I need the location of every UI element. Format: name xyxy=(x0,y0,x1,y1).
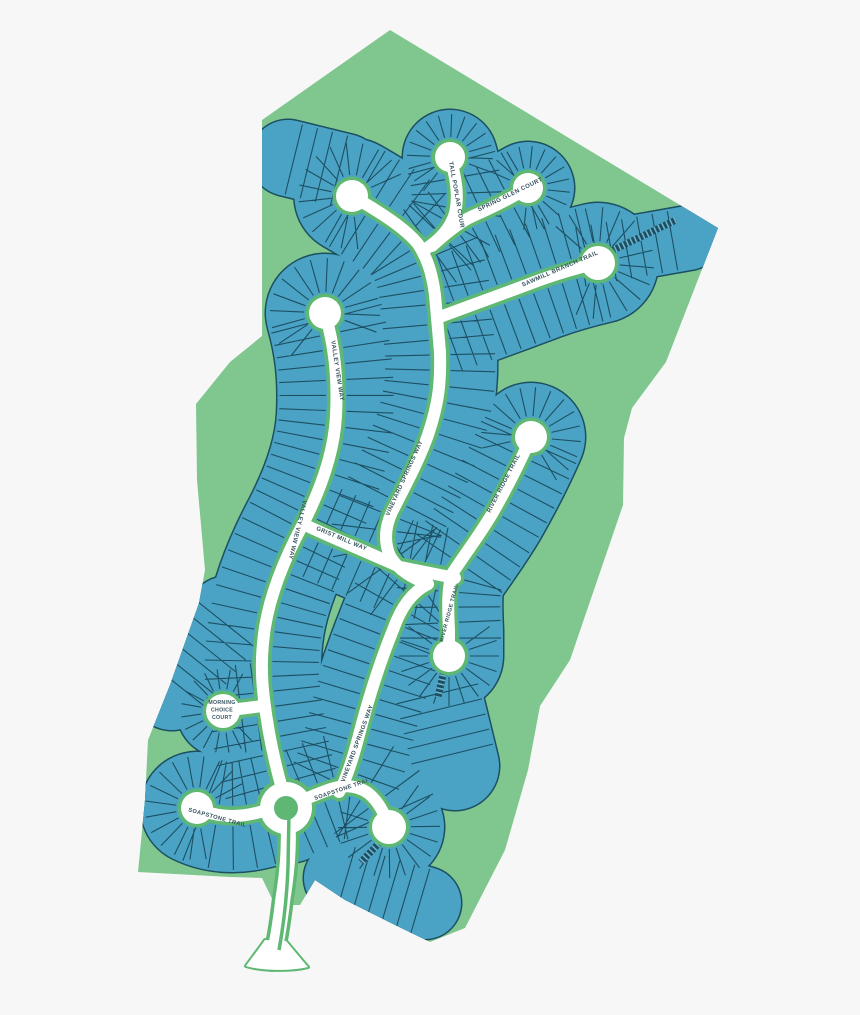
site-plan-map: TALL POPLAR COURTSPRING GLEN COURTSAWMIL… xyxy=(0,0,860,1015)
site-plan-svg: TALL POPLAR COURTSPRING GLEN COURTSAWMIL… xyxy=(0,0,860,1015)
roundabout-island xyxy=(274,796,298,820)
lot-band-lot-block-west xyxy=(172,618,228,688)
street-label-morning-choice-court: CHOICE xyxy=(211,708,233,714)
street-label-morning-choice-court: COURT xyxy=(212,715,232,721)
lot-band-lot-block-southeast xyxy=(340,878,425,903)
street-label-morning-choice-court: MORNING xyxy=(208,700,235,706)
